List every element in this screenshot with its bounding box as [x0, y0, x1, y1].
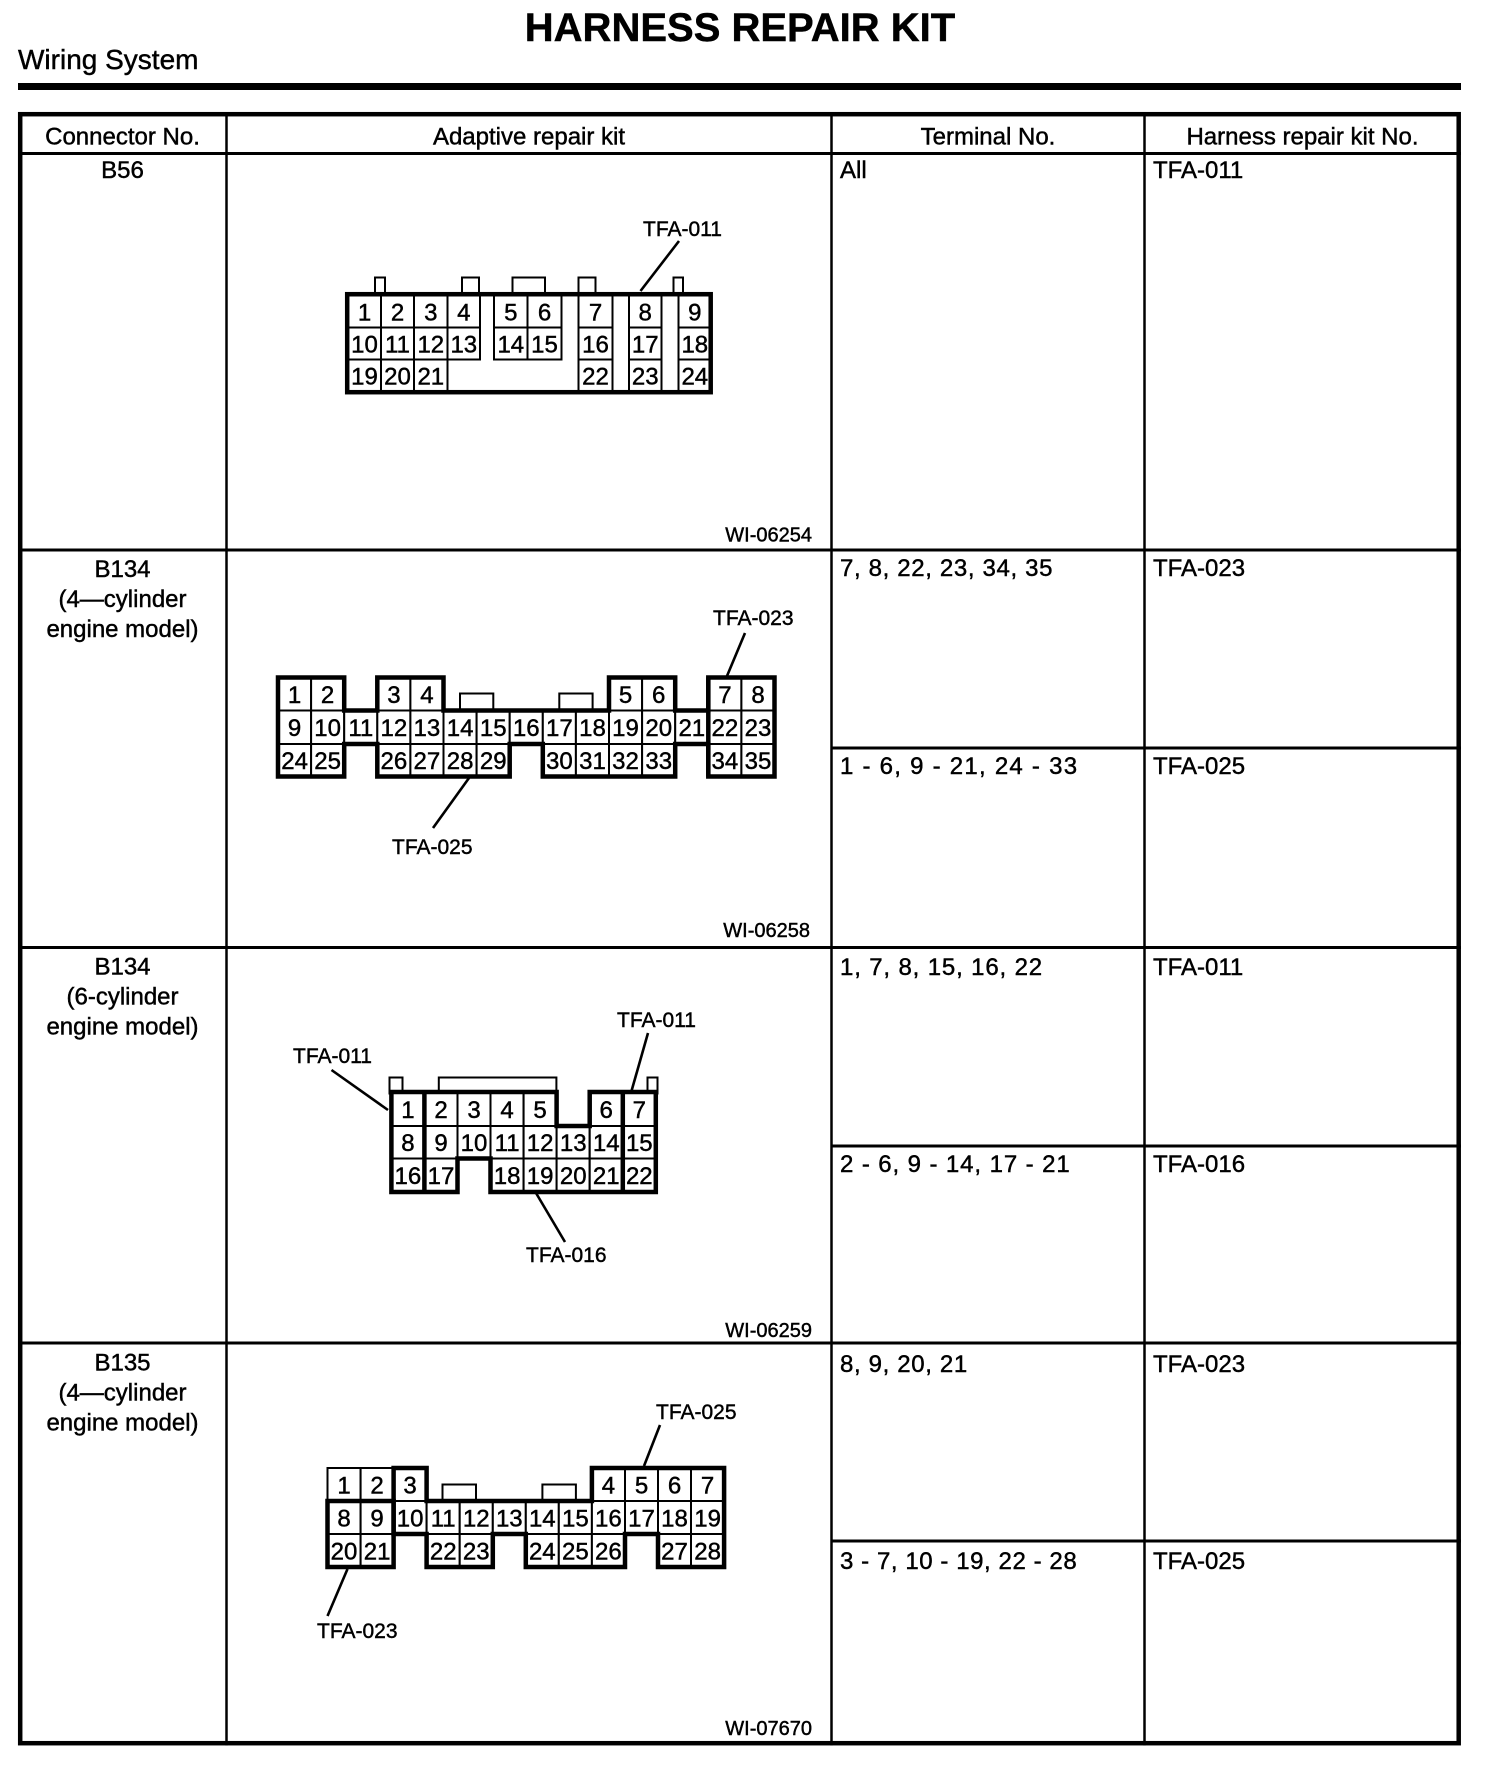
svg-text:7: 7 [589, 299, 602, 326]
svg-text:26: 26 [381, 748, 408, 775]
svg-text:13: 13 [496, 1505, 523, 1532]
svg-text:(6-cylinder: (6-cylinder [66, 984, 178, 1011]
svg-text:22: 22 [626, 1163, 653, 1190]
svg-text:23: 23 [463, 1538, 490, 1565]
svg-text:18: 18 [681, 331, 708, 358]
svg-text:8: 8 [639, 299, 652, 326]
svg-text:23: 23 [632, 363, 659, 390]
svg-text:20: 20 [331, 1538, 358, 1565]
svg-text:1: 1 [337, 1472, 350, 1499]
svg-text:11: 11 [348, 715, 373, 742]
svg-text:12: 12 [527, 1130, 554, 1157]
svg-text:TFA-025: TFA-025 [392, 836, 473, 859]
svg-text:19: 19 [527, 1163, 554, 1190]
svg-text:22: 22 [430, 1538, 457, 1565]
svg-text:17: 17 [428, 1163, 455, 1190]
svg-text:2: 2 [321, 682, 334, 709]
svg-text:22: 22 [582, 363, 609, 390]
svg-text:24: 24 [529, 1538, 556, 1565]
svg-text:16: 16 [595, 1505, 622, 1532]
svg-text:11: 11 [385, 331, 410, 358]
svg-text:3: 3 [467, 1097, 480, 1124]
svg-text:17: 17 [632, 331, 659, 358]
svg-text:TFA-016: TFA-016 [526, 1244, 607, 1267]
svg-text:engine model): engine model) [46, 1014, 198, 1041]
svg-text:B56: B56 [101, 157, 144, 184]
svg-text:TFA-011: TFA-011 [1153, 157, 1243, 184]
svg-text:TFA-011: TFA-011 [617, 1009, 696, 1032]
svg-text:6: 6 [600, 1097, 613, 1124]
svg-text:31: 31 [579, 748, 606, 775]
svg-text:9: 9 [370, 1505, 383, 1532]
svg-text:Terminal No.: Terminal No. [921, 124, 1056, 151]
svg-text:26: 26 [595, 1538, 622, 1565]
svg-text:13: 13 [414, 715, 441, 742]
svg-text:33: 33 [645, 748, 672, 775]
svg-text:TFA-011: TFA-011 [643, 218, 722, 241]
svg-text:Adaptive repair kit: Adaptive repair kit [433, 124, 625, 151]
svg-text:16: 16 [582, 331, 609, 358]
svg-text:WI-06254: WI-06254 [725, 525, 812, 547]
svg-text:TFA-011: TFA-011 [293, 1045, 372, 1068]
svg-text:6: 6 [538, 299, 551, 326]
svg-text:All: All [840, 157, 867, 184]
svg-text:12: 12 [417, 331, 444, 358]
svg-text:17: 17 [546, 715, 573, 742]
svg-text:8: 8 [337, 1505, 350, 1532]
svg-text:7: 7 [701, 1472, 714, 1499]
svg-text:13: 13 [450, 331, 477, 358]
svg-text:1: 1 [288, 682, 301, 709]
svg-text:19: 19 [351, 363, 378, 390]
svg-text:1 - 6, 9 - 21, 24 - 33: 1 - 6, 9 - 21, 24 - 33 [840, 753, 1078, 780]
svg-text:20: 20 [645, 715, 672, 742]
svg-text:Harness repair kit No.: Harness repair kit No. [1186, 124, 1418, 151]
svg-text:21: 21 [417, 363, 444, 390]
svg-text:3: 3 [387, 682, 400, 709]
svg-text:10: 10 [351, 331, 378, 358]
svg-text:engine model): engine model) [46, 616, 198, 643]
svg-text:18: 18 [494, 1163, 521, 1190]
svg-text:5: 5 [504, 299, 517, 326]
svg-text:14: 14 [447, 715, 474, 742]
svg-text:25: 25 [562, 1538, 589, 1565]
svg-text:1: 1 [358, 299, 371, 326]
svg-text:19: 19 [694, 1505, 721, 1532]
svg-text:6: 6 [652, 682, 665, 709]
svg-text:24: 24 [281, 748, 308, 775]
svg-text:8: 8 [401, 1130, 414, 1157]
svg-text:TFA-023: TFA-023 [1153, 555, 1245, 582]
svg-text:29: 29 [480, 748, 507, 775]
svg-text:TFA-025: TFA-025 [656, 1401, 737, 1424]
svg-text:4: 4 [602, 1472, 615, 1499]
svg-text:5: 5 [619, 682, 632, 709]
svg-text:20: 20 [384, 363, 411, 390]
svg-text:TFA-016: TFA-016 [1153, 1151, 1245, 1178]
svg-text:15: 15 [531, 331, 558, 358]
svg-text:9: 9 [688, 299, 701, 326]
svg-text:12: 12 [381, 715, 408, 742]
svg-text:21: 21 [678, 715, 705, 742]
svg-text:18: 18 [661, 1505, 688, 1532]
svg-text:TFA-023: TFA-023 [317, 1620, 398, 1643]
svg-text:3: 3 [403, 1472, 416, 1499]
svg-text:TFA-025: TFA-025 [1153, 1548, 1245, 1575]
svg-text:14: 14 [497, 331, 524, 358]
svg-text:4: 4 [420, 682, 433, 709]
svg-text:WI-06259: WI-06259 [725, 1320, 812, 1342]
svg-text:(4—cylinder: (4—cylinder [58, 1380, 186, 1407]
svg-text:Wiring System: Wiring System [18, 44, 198, 75]
svg-text:9: 9 [434, 1130, 447, 1157]
svg-text:1: 1 [401, 1097, 414, 1124]
svg-text:TFA-023: TFA-023 [1153, 1351, 1245, 1378]
svg-text:11: 11 [431, 1505, 456, 1532]
svg-text:24: 24 [681, 363, 708, 390]
svg-text:19: 19 [612, 715, 639, 742]
svg-text:32: 32 [612, 748, 639, 775]
svg-text:14: 14 [529, 1505, 556, 1532]
svg-text:28: 28 [694, 1538, 721, 1565]
svg-text:10: 10 [397, 1505, 424, 1532]
svg-text:8, 9, 20, 21: 8, 9, 20, 21 [840, 1351, 968, 1378]
svg-text:TFA-023: TFA-023 [713, 607, 794, 630]
svg-text:B134: B134 [94, 556, 150, 583]
svg-text:5: 5 [533, 1097, 546, 1124]
svg-text:35: 35 [745, 748, 772, 775]
svg-text:16: 16 [513, 715, 540, 742]
svg-text:10: 10 [461, 1130, 488, 1157]
svg-text:6: 6 [668, 1472, 681, 1499]
svg-text:HARNESS REPAIR KIT: HARNESS REPAIR KIT [525, 6, 955, 50]
svg-text:27: 27 [414, 748, 441, 775]
svg-text:14: 14 [593, 1130, 620, 1157]
svg-text:30: 30 [546, 748, 573, 775]
svg-text:22: 22 [712, 715, 739, 742]
svg-text:18: 18 [579, 715, 606, 742]
svg-text:34: 34 [712, 748, 739, 775]
svg-text:15: 15 [562, 1505, 589, 1532]
svg-text:8: 8 [751, 682, 764, 709]
svg-text:4: 4 [457, 299, 470, 326]
svg-text:2: 2 [370, 1472, 383, 1499]
svg-text:2: 2 [434, 1097, 447, 1124]
svg-text:27: 27 [661, 1538, 688, 1565]
svg-text:21: 21 [364, 1538, 391, 1565]
svg-text:25: 25 [314, 748, 341, 775]
svg-text:9: 9 [288, 715, 301, 742]
svg-text:15: 15 [480, 715, 507, 742]
svg-text:7: 7 [633, 1097, 646, 1124]
svg-text:10: 10 [314, 715, 341, 742]
svg-text:B134: B134 [94, 954, 150, 981]
svg-text:7, 8, 22, 23, 34, 35: 7, 8, 22, 23, 34, 35 [840, 555, 1053, 582]
svg-text:engine model): engine model) [46, 1410, 198, 1437]
svg-text:16: 16 [395, 1163, 422, 1190]
svg-text:B135: B135 [94, 1350, 150, 1377]
svg-text:11: 11 [495, 1130, 520, 1157]
svg-text:5: 5 [635, 1472, 648, 1499]
svg-text:TFA-011: TFA-011 [1153, 954, 1243, 981]
svg-text:TFA-025: TFA-025 [1153, 753, 1245, 780]
svg-text:17: 17 [628, 1505, 655, 1532]
svg-text:12: 12 [463, 1505, 490, 1532]
svg-text:3 - 7, 10 - 19, 22 - 28: 3 - 7, 10 - 19, 22 - 28 [840, 1548, 1077, 1575]
svg-text:1, 7, 8, 15, 16, 22: 1, 7, 8, 15, 16, 22 [840, 954, 1043, 981]
svg-text:23: 23 [745, 715, 772, 742]
svg-text:WI-07670: WI-07670 [725, 1718, 812, 1740]
svg-text:2 - 6, 9 - 14, 17 - 21: 2 - 6, 9 - 14, 17 - 21 [840, 1151, 1071, 1178]
svg-text:7: 7 [718, 682, 731, 709]
svg-text:21: 21 [593, 1163, 620, 1190]
svg-text:20: 20 [560, 1163, 587, 1190]
svg-text:3: 3 [424, 299, 437, 326]
svg-text:28: 28 [447, 748, 474, 775]
svg-text:(4—cylinder: (4—cylinder [58, 586, 186, 613]
svg-text:15: 15 [626, 1130, 653, 1157]
svg-text:Connector No.: Connector No. [45, 124, 200, 151]
svg-text:4: 4 [500, 1097, 513, 1124]
svg-text:2: 2 [391, 299, 404, 326]
svg-text:13: 13 [560, 1130, 587, 1157]
svg-text:WI-06258: WI-06258 [723, 920, 810, 942]
